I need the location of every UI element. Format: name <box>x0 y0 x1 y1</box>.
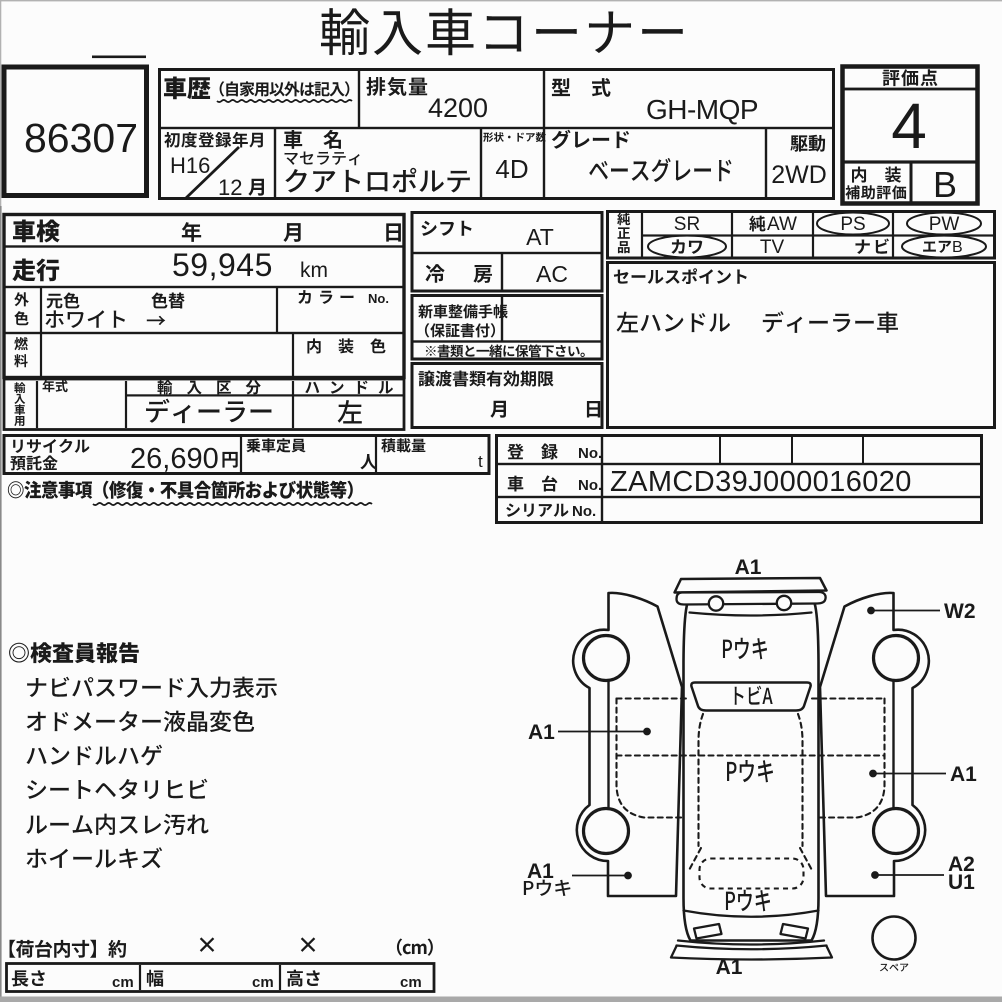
svg-text:A1: A1 <box>950 763 977 786</box>
svg-text:A1: A1 <box>528 721 555 744</box>
svg-text:No.: No. <box>578 477 602 494</box>
svg-text:B: B <box>933 164 957 205</box>
svg-text:AC: AC <box>536 261 568 287</box>
svg-text:H16: H16 <box>170 153 210 178</box>
svg-text:4D: 4D <box>495 154 528 184</box>
svg-text:PS: PS <box>840 214 865 235</box>
svg-text:t: t <box>478 452 483 471</box>
svg-text:B: B <box>952 239 963 256</box>
svg-text:km: km <box>300 259 328 282</box>
svg-text:SR: SR <box>674 214 700 235</box>
svg-text:W2: W2 <box>944 600 976 623</box>
svg-text:59,945: 59,945 <box>172 247 273 283</box>
svg-text:AW: AW <box>767 214 797 235</box>
svg-text:A1: A1 <box>716 956 743 979</box>
svg-text:26,690: 26,690 <box>130 443 219 475</box>
svg-text:AT: AT <box>526 224 554 250</box>
svg-text:U1: U1 <box>948 871 975 894</box>
svg-text:86307: 86307 <box>24 115 138 161</box>
svg-text:4: 4 <box>891 90 927 162</box>
svg-text:No.: No. <box>572 503 596 520</box>
svg-text:A1: A1 <box>527 860 554 883</box>
svg-text:cm: cm <box>112 974 134 991</box>
svg-text:ZAMCD39J000016020: ZAMCD39J000016020 <box>610 466 912 498</box>
svg-text:TV: TV <box>760 237 785 258</box>
svg-text:cm: cm <box>400 974 422 991</box>
svg-text:cm: cm <box>252 974 274 991</box>
svg-text:2WD: 2WD <box>771 161 827 189</box>
svg-text:GH-MQP: GH-MQP <box>646 94 758 125</box>
svg-text:12: 12 <box>218 175 242 200</box>
svg-text:4200: 4200 <box>428 93 488 123</box>
svg-text:No.: No. <box>578 445 602 462</box>
svg-text:PW: PW <box>929 214 960 235</box>
svg-text:No.: No. <box>368 291 389 306</box>
svg-text:A1: A1 <box>735 556 762 579</box>
